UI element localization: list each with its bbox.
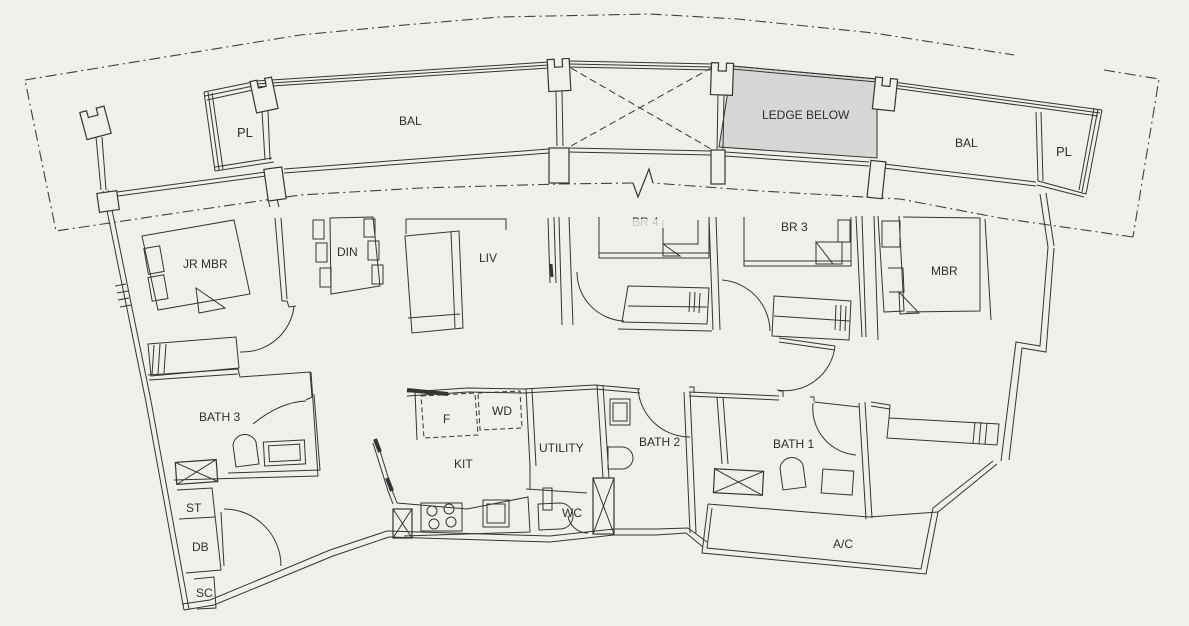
svg-text:LIV: LIV [479, 251, 497, 265]
svg-text:JR MBR: JR MBR [183, 257, 228, 271]
svg-text:WC: WC [562, 506, 582, 520]
svg-text:BAL: BAL [399, 114, 422, 128]
svg-text:DIN: DIN [337, 245, 358, 259]
svg-text:KIT: KIT [454, 457, 473, 471]
svg-text:A/C: A/C [833, 537, 853, 551]
svg-text:MBR: MBR [931, 264, 958, 278]
svg-text:BAL: BAL [955, 136, 978, 150]
svg-text:BATH 3: BATH 3 [199, 410, 240, 424]
svg-text:DB: DB [192, 540, 209, 554]
svg-text:PL: PL [237, 125, 253, 140]
svg-text:WD: WD [492, 404, 512, 418]
svg-text:PL: PL [1056, 144, 1072, 159]
svg-text:LEDGE BELOW: LEDGE BELOW [762, 108, 850, 122]
svg-text:UTILITY: UTILITY [539, 441, 584, 455]
svg-text:ST: ST [186, 501, 202, 515]
svg-text:F: F [443, 412, 450, 426]
svg-text:BATH 1: BATH 1 [773, 437, 814, 451]
svg-text:SC: SC [196, 586, 213, 600]
svg-text:BATH 2: BATH 2 [639, 435, 680, 449]
svg-text:BR 3: BR 3 [781, 220, 808, 234]
